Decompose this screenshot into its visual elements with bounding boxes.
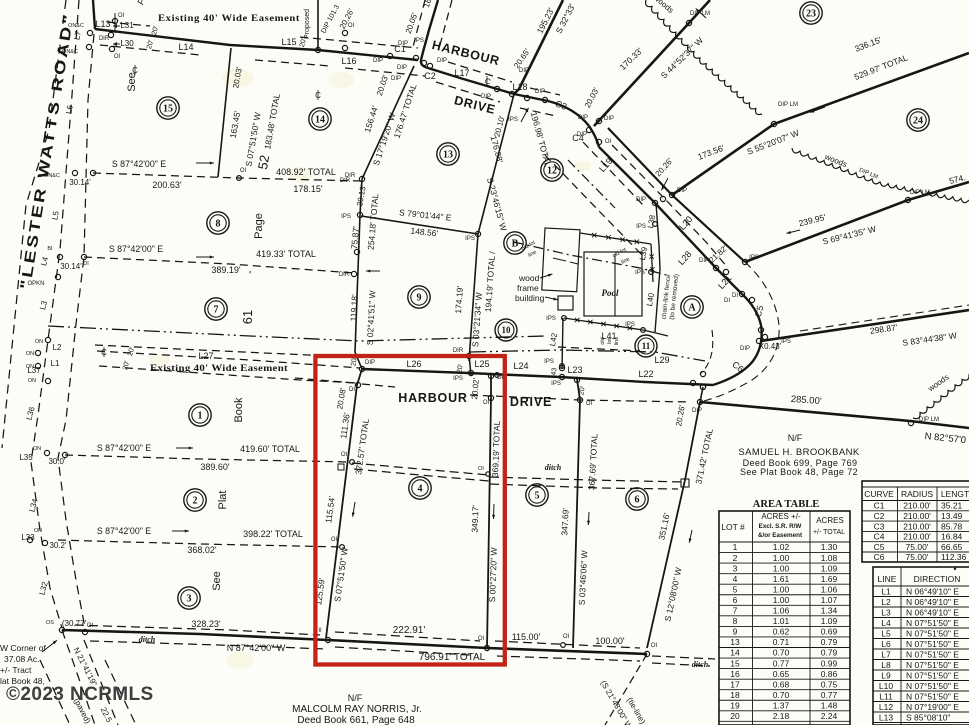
- svg-text:210.00': 210.00': [903, 501, 931, 511]
- svg-text:L16: L16: [341, 56, 356, 66]
- svg-text:OI: OI: [497, 375, 504, 381]
- svg-text:W Corner of: W Corner of: [0, 643, 46, 653]
- svg-text:Deed Book 661, Page 648: Deed Book 661, Page 648: [297, 715, 415, 725]
- svg-text:10: 10: [502, 325, 512, 335]
- svg-text:ON: ON: [26, 351, 34, 357]
- svg-text:4: 4: [733, 574, 738, 584]
- svg-text:•: •: [953, 564, 956, 574]
- svg-text:N 07°51'50" E: N 07°51'50" E: [906, 649, 959, 659]
- svg-text:61: 61: [240, 310, 255, 324]
- svg-text:369.19' TOTAL: 369.19' TOTAL: [490, 420, 502, 477]
- svg-text:200.63': 200.63': [152, 180, 182, 190]
- svg-text:IPS: IPS: [551, 381, 561, 387]
- svg-text:18: 18: [730, 690, 740, 700]
- svg-text:OI: OI: [118, 13, 125, 19]
- svg-text:1.00: 1.00: [773, 584, 790, 594]
- svg-text:15: 15: [730, 658, 740, 668]
- svg-text:DIR: DIR: [453, 348, 464, 354]
- svg-text:2: 2: [193, 496, 198, 507]
- svg-text:DIP: DIP: [692, 408, 702, 414]
- svg-text:Proposed: Proposed: [304, 9, 311, 39]
- svg-text:Plat: Plat: [217, 491, 229, 510]
- svg-text:IPS: IPS: [341, 214, 351, 220]
- svg-text:L24: L24: [513, 361, 528, 371]
- svg-text:ON&C: ON&C: [44, 173, 60, 179]
- svg-text:OI: OI: [563, 634, 570, 640]
- svg-text:1.07: 1.07: [821, 595, 838, 605]
- svg-text:N 07°19'00" E: N 07°19'00" E: [906, 702, 959, 712]
- svg-text:30.2': 30.2': [49, 541, 67, 550]
- svg-text:L5: L5: [881, 628, 891, 638]
- svg-text:CURVE: CURVE: [864, 489, 894, 499]
- svg-text:1.37: 1.37: [773, 700, 790, 710]
- svg-text:8: 8: [216, 219, 221, 230]
- svg-text:L8: L8: [881, 660, 891, 670]
- svg-text:66.65: 66.65: [941, 542, 963, 552]
- svg-text:1.06: 1.06: [821, 584, 838, 594]
- svg-text:N 06°49'10" E: N 06°49'10" E: [906, 607, 959, 617]
- svg-text:5: 5: [733, 584, 738, 594]
- svg-text:L31: L31: [120, 21, 134, 30]
- svg-text:L13: L13: [95, 19, 110, 29]
- svg-text:ACRES: ACRES: [816, 516, 844, 525]
- svg-text:L1: L1: [881, 586, 891, 596]
- svg-text:&/or Easement: &/or Easement: [758, 532, 803, 539]
- svg-text:0.65: 0.65: [773, 669, 790, 679]
- svg-text:9: 9: [417, 293, 422, 304]
- svg-text:1.08: 1.08: [821, 553, 838, 563]
- svg-text:DIP: DIP: [535, 89, 545, 95]
- svg-text:OI: OI: [478, 466, 484, 472]
- svg-text:OS: OS: [46, 620, 54, 626]
- svg-text:75.00': 75.00': [906, 542, 929, 552]
- svg-text:0.86: 0.86: [821, 669, 838, 679]
- svg-text:ditch: ditch: [692, 660, 709, 669]
- svg-text:0.75: 0.75: [821, 679, 838, 689]
- svg-text:(30.77': (30.77': [62, 619, 87, 628]
- svg-text:OI: OI: [331, 537, 338, 543]
- svg-text:1.48: 1.48: [821, 700, 838, 710]
- svg-text:ACRES +/-: ACRES +/-: [761, 512, 801, 521]
- svg-text:wood: wood: [518, 273, 540, 283]
- svg-text:ON: ON: [33, 446, 41, 452]
- svg-text:ditch: ditch: [139, 635, 156, 644]
- svg-text:IPS: IPS: [546, 316, 556, 322]
- svg-text:16.84: 16.84: [941, 532, 963, 542]
- svg-text:N 07°51'50" E: N 07°51'50" E: [906, 639, 959, 649]
- svg-text:DIP: DIP: [740, 346, 750, 352]
- svg-text:OI: OI: [341, 452, 348, 458]
- svg-text:1.02: 1.02: [773, 542, 790, 552]
- svg-text:0.70: 0.70: [773, 690, 790, 700]
- svg-text:210.00': 210.00': [903, 521, 931, 531]
- svg-text:7: 7: [733, 606, 738, 616]
- svg-text:C2: C2: [424, 71, 436, 81]
- svg-text:S 85°08'10": S 85°08'10": [906, 712, 950, 722]
- svg-text:See: See: [126, 72, 138, 92]
- svg-text:12: 12: [547, 166, 557, 177]
- svg-text:2.18: 2.18: [773, 711, 790, 721]
- svg-text:B: B: [512, 239, 519, 250]
- svg-text:DIP: DIP: [636, 197, 646, 203]
- svg-text:DIP LM: DIP LM: [919, 417, 939, 423]
- svg-text:1.00: 1.00: [773, 595, 790, 605]
- svg-text:19: 19: [730, 700, 740, 710]
- svg-text:L2: L2: [53, 343, 62, 352]
- svg-text:24: 24: [913, 116, 923, 127]
- svg-text:L1: L1: [51, 359, 60, 368]
- svg-text:0.68: 0.68: [773, 679, 790, 689]
- svg-text:0.69: 0.69: [821, 627, 838, 637]
- svg-text:IPS: IPS: [636, 224, 646, 230]
- svg-text:30.14': 30.14': [60, 262, 82, 271]
- svg-text:BI: BI: [47, 246, 53, 252]
- svg-text:OI: OI: [483, 400, 490, 406]
- svg-text:LINE: LINE: [878, 574, 897, 584]
- svg-text:115.00': 115.00': [512, 632, 541, 642]
- svg-text:S 87°42'00" E: S 87°42'00" E: [97, 443, 151, 453]
- svg-text:L13: L13: [879, 712, 893, 722]
- svg-text:LOT #: LOT #: [721, 522, 745, 532]
- svg-text:L10: L10: [879, 681, 893, 691]
- svg-text:0.70: 0.70: [773, 648, 790, 658]
- svg-text:IPS: IPS: [625, 322, 635, 328]
- svg-text:15: 15: [163, 104, 173, 115]
- svg-text:0.79: 0.79: [821, 637, 838, 647]
- svg-text:+/- Tract: +/- Tract: [0, 665, 32, 675]
- svg-text:DIP: DIP: [391, 76, 401, 82]
- svg-text:AREA TABLE: AREA TABLE: [753, 499, 819, 510]
- svg-text:8: 8: [733, 616, 738, 626]
- svg-text:L35: L35: [19, 453, 33, 462]
- svg-text:C6: C6: [874, 552, 885, 562]
- svg-text:1.06: 1.06: [773, 606, 790, 616]
- svg-text:OI: OI: [586, 401, 593, 407]
- svg-text:1: 1: [198, 411, 203, 422]
- svg-text:L14: L14: [178, 42, 193, 52]
- svg-text:20.02': 20.02': [470, 377, 481, 400]
- svg-text:L29: L29: [654, 355, 669, 365]
- svg-text:DIP: DIP: [577, 132, 587, 138]
- svg-text:ON&C: ON&C: [62, 49, 78, 55]
- svg-text:1.00: 1.00: [773, 563, 790, 573]
- svg-text:13: 13: [443, 150, 453, 161]
- svg-text:Existing 40' Wide Easement: Existing 40' Wide Easement: [158, 14, 300, 24]
- svg-text:S 00°27'20" W: S 00°27'20" W: [487, 547, 499, 602]
- svg-text:N 07°51'50" E: N 07°51'50" E: [906, 628, 959, 638]
- svg-text:ON&C: ON&C: [68, 23, 84, 29]
- svg-text:N 07°51'50" E: N 07°51'50" E: [906, 681, 959, 691]
- svg-text:Page: Page: [253, 213, 265, 239]
- svg-text:14: 14: [730, 648, 740, 658]
- svg-text:OI: OI: [478, 636, 485, 642]
- svg-text:1.00: 1.00: [773, 553, 790, 563]
- svg-text:6: 6: [635, 495, 640, 506]
- svg-text:N 07°51'50" E: N 07°51'50" E: [906, 691, 959, 701]
- svg-text:L2: L2: [881, 597, 891, 607]
- svg-text:L4: L4: [881, 618, 891, 628]
- svg-text:0.77: 0.77: [773, 658, 790, 668]
- svg-text:C2: C2: [874, 511, 885, 521]
- svg-text:L6: L6: [881, 639, 891, 649]
- svg-text:35.21: 35.21: [941, 501, 963, 511]
- svg-text:222.91': 222.91': [393, 625, 426, 636]
- svg-text:178.15': 178.15': [293, 184, 323, 194]
- svg-text:0.99: 0.99: [821, 658, 838, 668]
- svg-text:A: A: [688, 303, 696, 314]
- svg-text:L25: L25: [474, 359, 489, 369]
- svg-text:+/- TOTAL: +/- TOTAL: [813, 529, 845, 536]
- svg-text:37.08 Ac.: 37.08 Ac.: [4, 654, 39, 664]
- svg-text:ON: ON: [26, 364, 34, 370]
- svg-text:DIP: DIP: [397, 65, 407, 71]
- svg-text:ON: ON: [35, 339, 43, 345]
- svg-text:75.00': 75.00': [906, 552, 929, 562]
- svg-text:S 87°42'00" E: S 87°42'00" E: [112, 159, 166, 169]
- svg-text:L23: L23: [567, 365, 582, 375]
- svg-text:RADIUS: RADIUS: [901, 489, 933, 499]
- svg-text:IPS: IPS: [508, 117, 518, 123]
- svg-text:See: See: [211, 571, 223, 591]
- svg-text:30.0': 30.0': [48, 457, 66, 466]
- svg-text:174.19': 174.19': [453, 285, 465, 314]
- svg-text:L7: L7: [881, 649, 891, 659]
- svg-text:6: 6: [733, 595, 738, 605]
- svg-text:100.00': 100.00': [595, 636, 625, 646]
- svg-text:0.77: 0.77: [821, 690, 838, 700]
- svg-text:N 87°42'00" W: N 87°42'00" W: [227, 643, 286, 653]
- svg-text:1.61: 1.61: [773, 574, 790, 584]
- svg-text:20: 20: [730, 711, 740, 721]
- svg-text:210.00': 210.00': [903, 532, 931, 542]
- svg-text:368.02': 368.02': [187, 545, 217, 555]
- svg-text:L12: L12: [879, 702, 893, 712]
- svg-text:5: 5: [535, 491, 540, 502]
- svg-text:DIR: DIR: [345, 173, 356, 179]
- svg-text:52: 52: [255, 154, 272, 171]
- svg-text:©2023 NCRMLS: ©2023 NCRMLS: [6, 684, 154, 705]
- svg-text:Excl. S.R. R/W: Excl. S.R. R/W: [759, 523, 802, 530]
- svg-text:DI: DI: [349, 387, 355, 393]
- svg-text:30.14': 30.14': [69, 178, 91, 187]
- svg-text:1.09: 1.09: [821, 616, 838, 626]
- svg-text:17: 17: [730, 679, 740, 689]
- svg-text:L9: L9: [881, 670, 891, 680]
- svg-text:408.92' TOTAL: 408.92' TOTAL: [276, 167, 336, 177]
- svg-text:frame: frame: [517, 283, 539, 293]
- svg-text:L41: L41: [601, 331, 616, 341]
- svg-text:398.22' TOTAL: 398.22' TOTAL: [243, 529, 303, 539]
- svg-text:2.24: 2.24: [821, 711, 838, 721]
- svg-text:L22: L22: [638, 369, 653, 379]
- svg-text:112.36: 112.36: [941, 552, 967, 562]
- svg-text:347.69': 347.69': [559, 507, 570, 535]
- svg-text:14: 14: [315, 115, 325, 126]
- svg-text:11: 11: [642, 341, 651, 351]
- svg-text:IPS: IPS: [453, 376, 463, 382]
- svg-text:3: 3: [187, 594, 192, 605]
- svg-text:1.01: 1.01: [773, 616, 790, 626]
- svg-text:IPS: IPS: [414, 38, 424, 44]
- svg-text:0.79: 0.79: [821, 648, 838, 658]
- svg-text:ON: ON: [34, 528, 42, 534]
- svg-text:0.71: 0.71: [773, 637, 790, 647]
- svg-text:L30: L30: [120, 39, 134, 48]
- svg-text:0.62: 0.62: [773, 627, 790, 637]
- svg-text:IPS: IPS: [465, 236, 475, 242]
- svg-text:L3: L3: [881, 607, 891, 617]
- svg-text:DIP: DIP: [365, 360, 375, 366]
- svg-text:23: 23: [806, 9, 816, 20]
- svg-text:DIP LM: DIP LM: [778, 102, 798, 108]
- svg-text:See Plat Book 48, Page 72: See Plat Book 48, Page 72: [740, 467, 858, 477]
- svg-text:419.60' TOTAL: 419.60' TOTAL: [240, 444, 300, 454]
- svg-text:N 07°51'50" E: N 07°51'50" E: [906, 618, 959, 628]
- svg-text:DIR: DIR: [99, 36, 110, 42]
- svg-text:43: 43: [550, 367, 558, 376]
- svg-text:OPKN: OPKN: [27, 281, 44, 287]
- svg-text:C1: C1: [874, 501, 885, 511]
- svg-text:N/F: N/F: [788, 433, 803, 443]
- svg-text:85.78: 85.78: [941, 521, 963, 531]
- svg-text:C3: C3: [874, 521, 885, 531]
- svg-text:DIP: DIP: [373, 58, 383, 64]
- svg-text:1.30: 1.30: [821, 542, 838, 552]
- svg-text:13: 13: [730, 637, 740, 647]
- svg-text:796.91' TOTAL: 796.91' TOTAL: [419, 652, 486, 663]
- svg-text:3: 3: [733, 563, 738, 573]
- svg-text:N 06°49'10" E: N 06°49'10" E: [906, 586, 959, 596]
- svg-text:119.18': 119.18': [348, 294, 359, 322]
- svg-text:389.19': 389.19': [211, 265, 241, 275]
- svg-text:L17: L17: [454, 68, 469, 78]
- svg-text:DIP: DIP: [437, 58, 447, 64]
- svg-text:II: II: [318, 628, 322, 634]
- svg-text:MALCOLM RAY NORRIS, Jr.: MALCOLM RAY NORRIS, Jr.: [292, 704, 422, 715]
- svg-text:N 07°51'50" E: N 07°51'50" E: [906, 670, 959, 680]
- svg-text:C5: C5: [874, 542, 885, 552]
- svg-text:LENGT: LENGT: [941, 489, 969, 499]
- svg-text:HARBOUR: HARBOUR: [398, 391, 468, 405]
- svg-text:ON: ON: [28, 378, 36, 384]
- svg-text:16: 16: [730, 669, 740, 679]
- svg-text:OI: OI: [651, 643, 658, 649]
- svg-text:L11: L11: [879, 691, 893, 701]
- svg-text:X0.43': X0.43': [759, 342, 782, 351]
- svg-text:1.34: 1.34: [821, 606, 838, 616]
- svg-text:L26: L26: [406, 359, 421, 369]
- svg-text:OI: OI: [348, 23, 355, 29]
- svg-text:-: -: [244, 270, 256, 274]
- svg-text:N/F: N/F: [348, 693, 363, 703]
- svg-text:S 87°42'00" E: S 87°42'00" E: [97, 526, 151, 536]
- svg-text:Existing 40' Wide Easement: Existing 40' Wide Easement: [150, 364, 289, 374]
- svg-text:OI: OI: [605, 139, 612, 145]
- svg-text:7: 7: [214, 305, 219, 316]
- svg-text:1.69: 1.69: [821, 574, 838, 584]
- svg-text:building: building: [515, 293, 545, 303]
- svg-text:DI: DI: [724, 298, 730, 304]
- svg-text:1: 1: [733, 542, 738, 552]
- svg-text:4: 4: [418, 484, 423, 495]
- svg-text:IPS: IPS: [635, 270, 645, 276]
- svg-text:DIP: DIP: [604, 116, 614, 122]
- svg-text:13.49: 13.49: [941, 511, 963, 521]
- svg-text:210.00': 210.00': [903, 511, 931, 521]
- svg-text:DIP: DIP: [398, 41, 408, 47]
- svg-text:DIP: DIP: [578, 115, 588, 121]
- svg-text:1.09: 1.09: [821, 563, 838, 573]
- svg-text:ditch: ditch: [545, 463, 562, 472]
- svg-text:OI: OI: [114, 54, 121, 60]
- svg-text:L15: L15: [281, 37, 296, 47]
- svg-text:SAMUEL H. BROOKBANK: SAMUEL H. BROOKBANK: [738, 447, 860, 458]
- svg-text:285.00': 285.00': [790, 394, 822, 407]
- svg-text:389.60': 389.60': [200, 462, 230, 472]
- svg-text:IPS: IPS: [781, 339, 791, 345]
- svg-text:IPS: IPS: [544, 359, 554, 365]
- svg-text:N 06°49'10" E: N 06°49'10" E: [906, 597, 959, 607]
- svg-text:OI: OI: [240, 168, 247, 174]
- svg-text:DI: DI: [83, 261, 89, 267]
- svg-text:DI: DI: [732, 293, 738, 299]
- svg-text:328.23': 328.23': [191, 619, 221, 629]
- svg-text:9: 9: [733, 627, 738, 637]
- svg-text:DIP: DIP: [481, 94, 491, 100]
- svg-text:N 07°51'50" E: N 07°51'50" E: [906, 660, 959, 670]
- svg-text:L27: L27: [198, 351, 213, 361]
- svg-text:Book: Book: [233, 397, 245, 423]
- svg-text:C4: C4: [874, 532, 885, 542]
- svg-text:419.33' TOTAL: 419.33' TOTAL: [256, 249, 316, 259]
- svg-text:2: 2: [733, 553, 738, 563]
- svg-text:DIRECTION: DIRECTION: [914, 574, 961, 584]
- svg-text:349.17': 349.17': [470, 505, 481, 533]
- svg-text:Pool: Pool: [602, 288, 619, 298]
- svg-text:75.87': 75.87': [349, 226, 361, 250]
- svg-text:S 87°42'00" E: S 87°42'00" E: [109, 244, 163, 254]
